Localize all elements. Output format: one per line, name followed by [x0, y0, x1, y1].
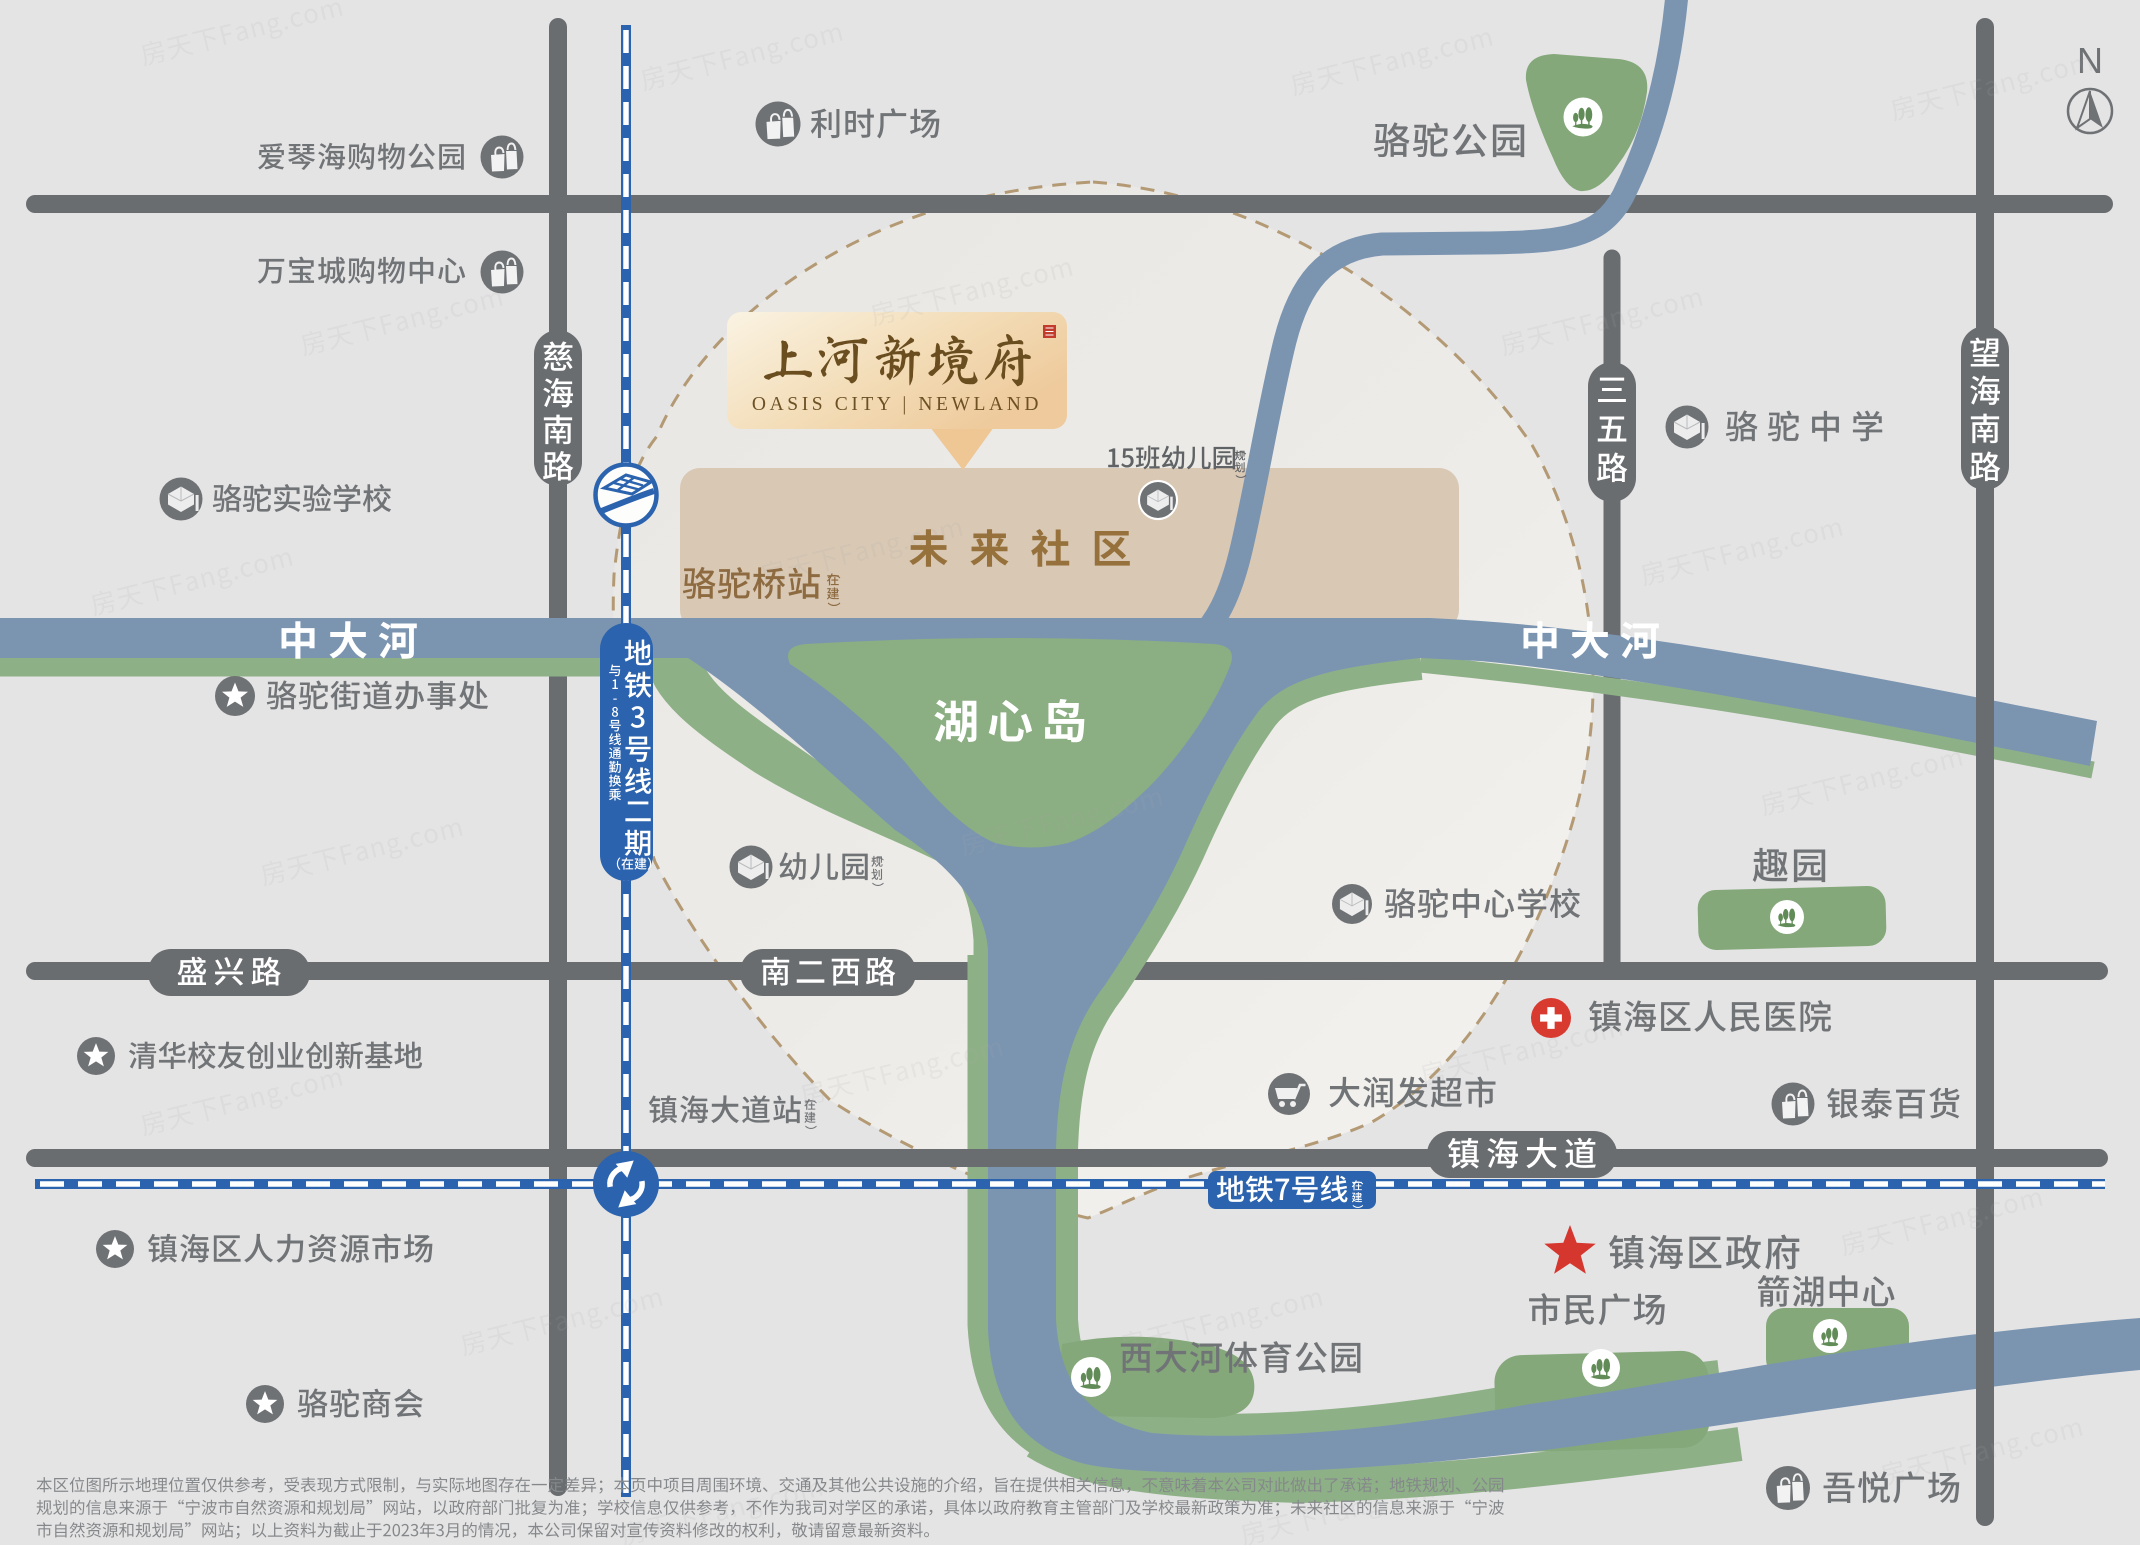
svg-text:OASIS CITY | NEWLAND: OASIS CITY | NEWLAND: [752, 394, 1042, 415]
